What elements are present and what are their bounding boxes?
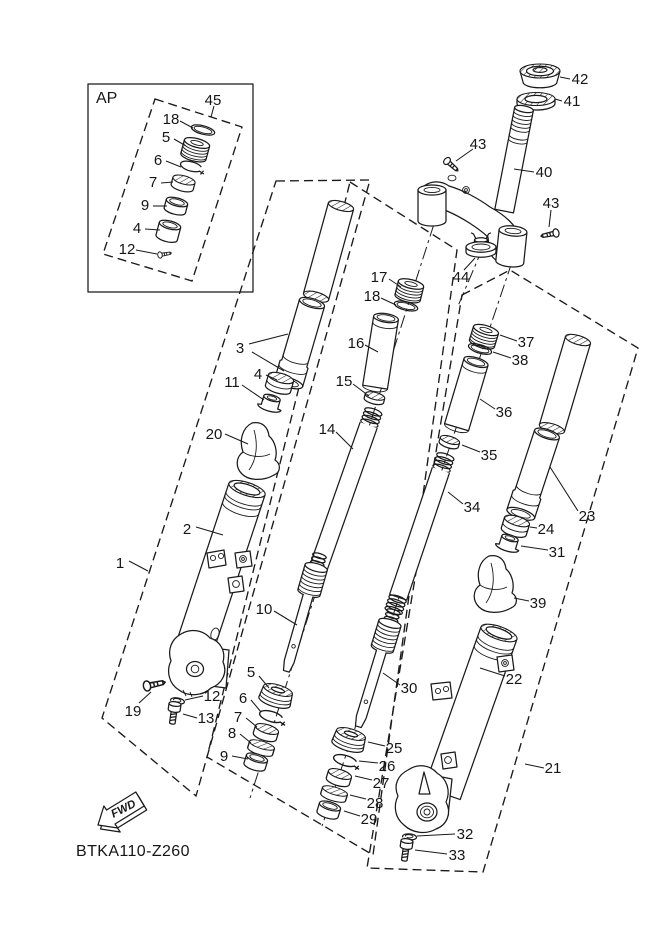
label-37: 37 [518, 334, 535, 351]
label-33: 33 [449, 847, 466, 864]
label-41: 41 [564, 93, 581, 110]
label-15: 15 [336, 373, 353, 390]
part-15-spring-seat [363, 390, 385, 406]
part-19-bolt [142, 677, 166, 691]
part-30-damper-rod [347, 606, 405, 730]
label-38: 38 [512, 352, 529, 369]
label-28: 28 [367, 795, 384, 812]
label-23: 23 [579, 508, 596, 525]
left-damper-assembly [243, 277, 425, 774]
part-39-guard [474, 556, 516, 613]
part-43-bolt-lower [540, 228, 560, 240]
label-40: 40 [536, 164, 553, 181]
label-12-ap: 12 [119, 241, 136, 258]
label-25: 25 [386, 740, 403, 757]
part-13-bolt [166, 701, 181, 725]
caliper-lug-a [235, 551, 252, 568]
label-9-left: 9 [220, 748, 228, 765]
diagram-code: BTKA110-Z260 [76, 843, 190, 860]
label-27: 27 [373, 775, 390, 792]
label-36: 36 [496, 404, 513, 421]
part-11-spacer [257, 392, 285, 414]
label-4-ap: 4 [133, 220, 141, 237]
label-18-damper: 18 [364, 288, 381, 305]
label-5-ap: 5 [162, 129, 170, 146]
part-7-seal-ap [170, 173, 196, 194]
label-26: 26 [379, 758, 396, 775]
bracket-left-clamp [418, 185, 446, 226]
label-10: 10 [256, 601, 273, 618]
label-9-ap: 9 [141, 197, 149, 214]
label-8: 8 [228, 725, 236, 742]
label-1: 1 [116, 555, 124, 572]
part-22-outer-tube [395, 621, 519, 833]
part-12-screw-ap [157, 250, 172, 259]
part-10-damper-rod [275, 550, 331, 674]
parts-diagram-page: AP 45 18 5 6 7 9 4 12 42 41 43 40 43 44 … [0, 0, 661, 935]
caliper-lug-b [228, 576, 244, 593]
part-33-bolt [398, 838, 413, 862]
label-31: 31 [549, 544, 566, 561]
fwd-arrow: FWD [98, 792, 147, 832]
part-25-seal-cap [330, 724, 368, 755]
part-20-guard [237, 423, 279, 480]
label-17: 17 [371, 269, 388, 286]
label-43-lower: 43 [543, 195, 560, 212]
label-6-left: 6 [239, 690, 247, 707]
label-18-ap: 18 [163, 111, 180, 128]
part-4-collar-ap [155, 218, 182, 244]
label-2: 2 [183, 521, 191, 538]
caliper-lug-plate [207, 550, 226, 568]
part-34-spring [384, 451, 455, 616]
label-7-left: 7 [234, 709, 242, 726]
part-43-bolt-upper [442, 156, 460, 174]
label-42: 42 [572, 71, 589, 88]
bracket-right-clamp [495, 225, 527, 269]
label-4-left: 4 [254, 366, 262, 383]
label-34: 34 [464, 499, 481, 516]
part-23-inner-tube-lower [505, 425, 562, 523]
right-fork-assembly [395, 332, 591, 862]
ap-box-title: AP [96, 90, 117, 107]
label-14: 14 [319, 421, 336, 438]
part-23-inner-tube-upper [538, 332, 592, 436]
label-30: 30 [401, 680, 418, 697]
part-16-spacer-tube [362, 312, 399, 394]
label-13: 13 [198, 710, 215, 727]
part-5-cap-ap [180, 135, 211, 164]
part-26-clip [332, 752, 361, 770]
part-42-bearing [520, 64, 560, 88]
label-35: 35 [481, 447, 498, 464]
part-3-inner-tube-upper [302, 198, 354, 304]
label-6-ap: 6 [154, 152, 162, 169]
label-22: 22 [506, 671, 523, 688]
label-5-left: 5 [247, 664, 255, 681]
label-11: 11 [224, 374, 240, 391]
lug-lower-right-fork [441, 752, 457, 769]
label-16: 16 [348, 335, 365, 352]
label-20: 20 [206, 426, 223, 443]
label-29: 29 [361, 811, 378, 828]
label-21: 21 [545, 760, 562, 777]
label-44: 44 [453, 269, 470, 286]
part-5-seal-cap-left [257, 680, 295, 711]
part-35-spring-seat [438, 434, 461, 451]
label-39: 39 [530, 595, 547, 612]
label-45: 45 [205, 92, 222, 109]
label-32: 32 [457, 826, 474, 843]
label-3: 3 [236, 340, 244, 357]
left-fork-assembly [142, 198, 354, 725]
label-12-left: 12 [204, 688, 221, 705]
label-7-ap: 7 [149, 174, 157, 191]
lug-upper-right-fork [497, 655, 514, 672]
lug-plate-right-fork [431, 682, 452, 700]
part-18-oring-ap [190, 123, 215, 137]
label-19: 19 [125, 703, 142, 720]
fork-exploded-diagram: AP 45 18 5 6 7 9 4 12 42 41 43 40 43 44 … [0, 0, 661, 935]
label-24: 24 [538, 521, 555, 538]
label-43-upper: 43 [470, 136, 487, 153]
